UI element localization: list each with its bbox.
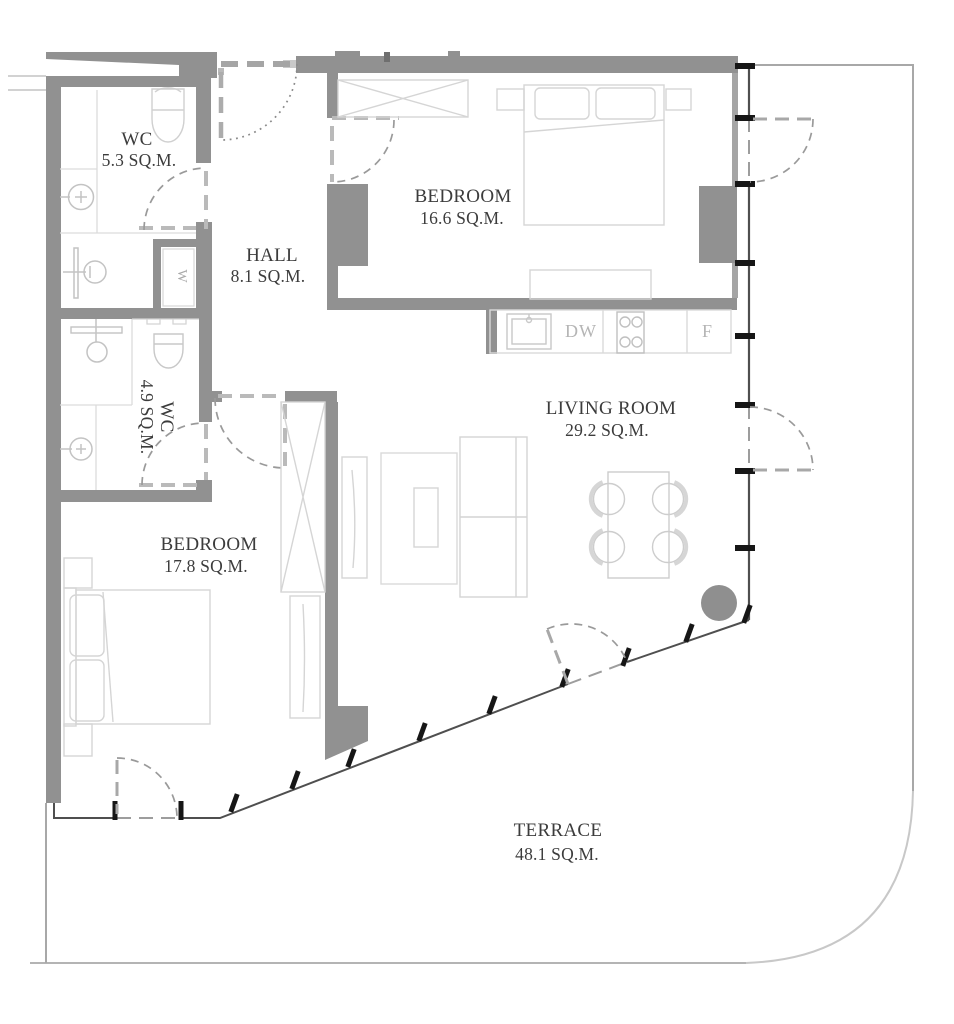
- svg-text:DW: DW: [565, 321, 597, 341]
- svg-text:HALL: HALL: [246, 245, 298, 266]
- svg-text:8.1 SQ.M.: 8.1 SQ.M.: [231, 266, 306, 286]
- svg-text:4.9 SQ.M.: 4.9 SQ.M.: [137, 380, 157, 455]
- svg-text:BEDROOM: BEDROOM: [160, 534, 257, 555]
- svg-text:BEDROOM: BEDROOM: [414, 186, 511, 207]
- svg-text:16.6 SQ.M.: 16.6 SQ.M.: [420, 208, 504, 228]
- svg-text:TERRACE: TERRACE: [514, 820, 603, 841]
- svg-text:WC: WC: [156, 401, 177, 432]
- svg-text:17.8 SQ.M.: 17.8 SQ.M.: [164, 556, 248, 576]
- svg-text:5.3 SQ.M.: 5.3 SQ.M.: [102, 150, 177, 170]
- svg-text:F: F: [702, 321, 712, 341]
- svg-text:29.2 SQ.M.: 29.2 SQ.M.: [565, 420, 649, 440]
- svg-text:48.1 SQ.M.: 48.1 SQ.M.: [515, 844, 599, 864]
- svg-text:W: W: [174, 269, 189, 283]
- svg-text:LIVING ROOM: LIVING ROOM: [546, 398, 676, 419]
- svg-text:WC: WC: [121, 129, 152, 150]
